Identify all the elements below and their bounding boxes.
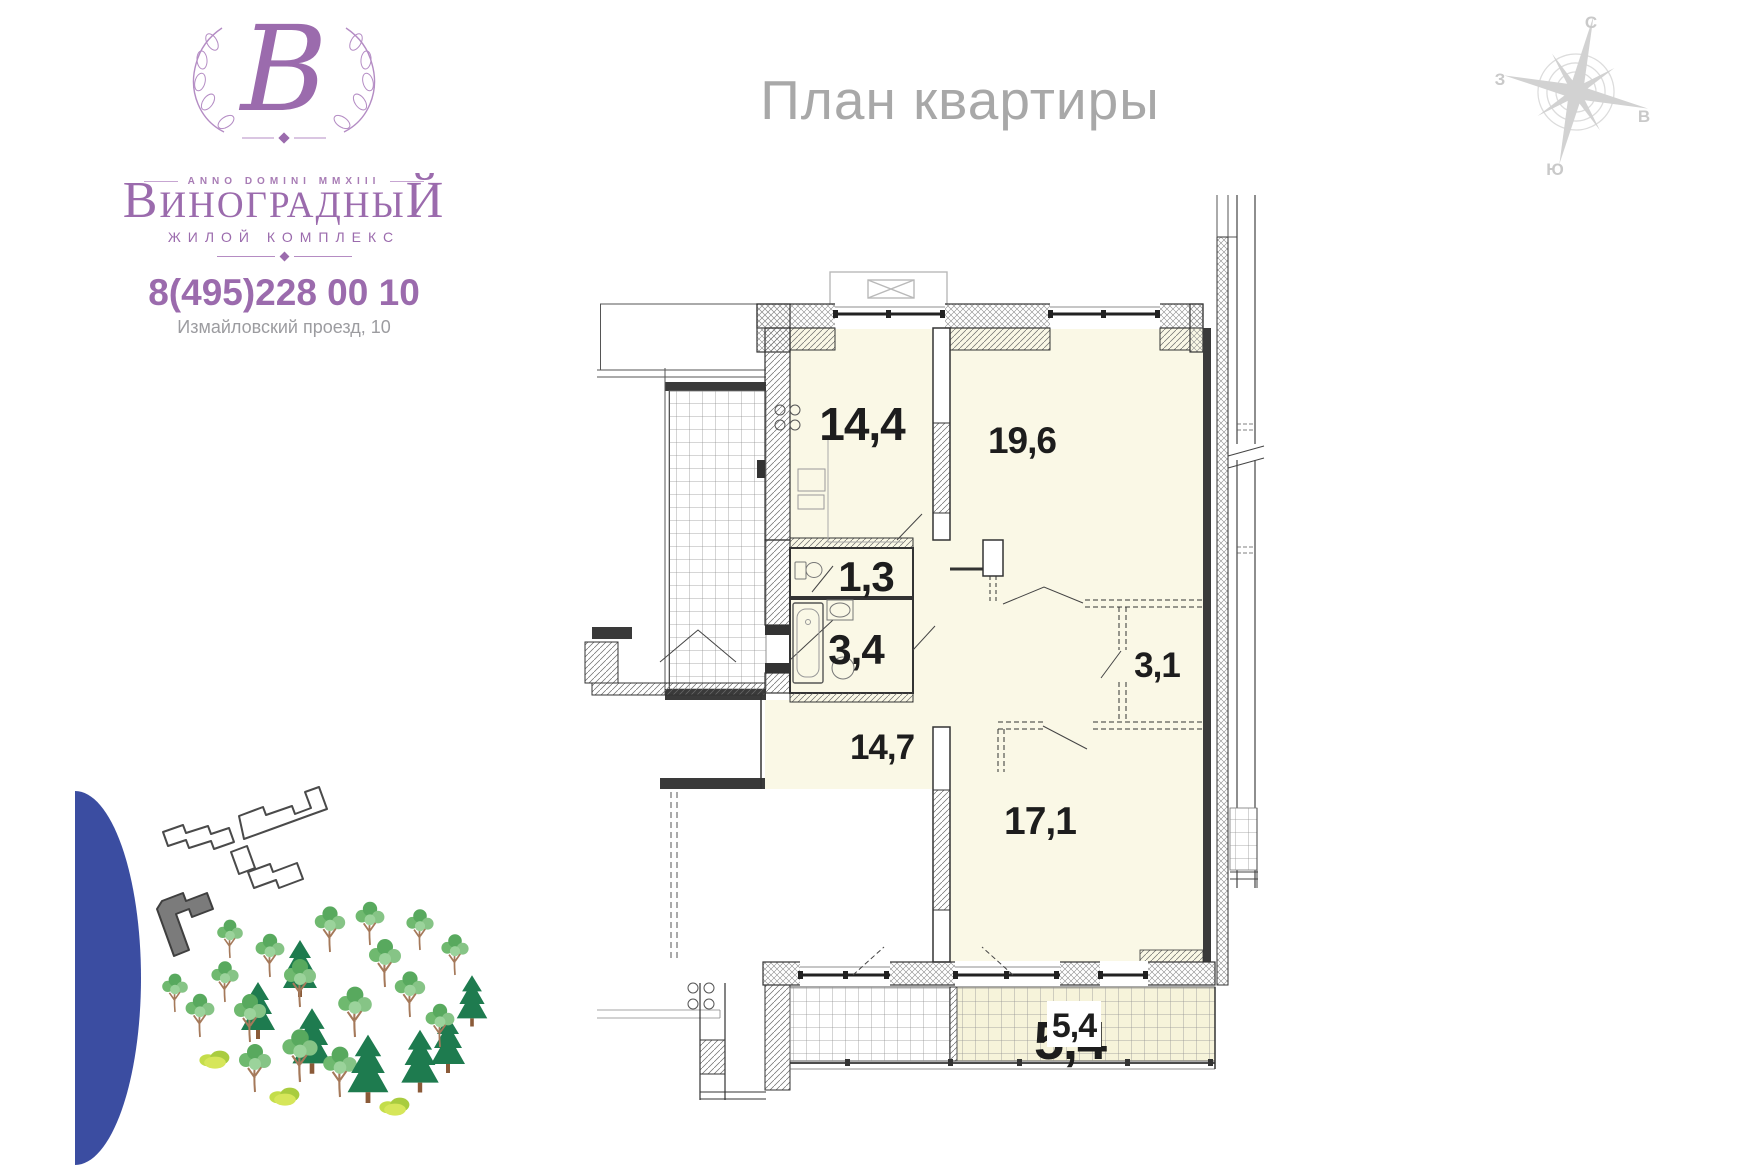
balcony-window-right (953, 961, 1060, 986)
complex-name-first-cap: В (123, 172, 160, 229)
ornament-divider (116, 253, 452, 260)
ornament-line-right (294, 256, 352, 257)
room-label-bathroom: 3,4 (828, 626, 885, 673)
logo-monogram-letter: В (239, 4, 328, 138)
bedroom-left-wall (933, 727, 950, 962)
developer-logo: В ANNO DOMINI MMXIII ВИНОГРАДНЫЙ ЖИЛОЙ К… (116, 4, 452, 338)
compass-east-label: В (1638, 107, 1650, 126)
compass-west-label: З (1495, 70, 1506, 89)
brochure-page: В ANNO DOMINI MMXIII ВИНОГРАДНЫЙ ЖИЛОЙ К… (0, 0, 1762, 1165)
balcony-area-label-group: 5,4 5,4 (1034, 1001, 1107, 1071)
neighbor-balcony-right (1230, 808, 1258, 888)
vent-shaft-icon (830, 272, 947, 304)
balcony-window-small (1098, 961, 1148, 986)
forest-illustration (162, 902, 487, 1116)
wreath-icon: В (116, 4, 452, 182)
compass-south-label: Ю (1546, 160, 1564, 179)
ornament-line-left (217, 256, 275, 257)
site-plan-decoration (0, 680, 570, 1165)
building-outline (239, 787, 327, 839)
page-title: План квартиры (680, 68, 1240, 132)
apartment-floor-plan: 5,4 5,4 14,4 19,6 1,3 3,4 3,1 14,7 17,1 (555, 190, 1335, 1165)
compass-rose: С Ю З В (1470, 0, 1700, 200)
diamond-icon (279, 251, 289, 261)
room-label-balcony: 5,4 (1052, 1007, 1097, 1045)
living-window (1048, 303, 1160, 329)
address-line: Измайловский проезд, 10 (116, 317, 452, 338)
compass-north-label: С (1585, 13, 1597, 32)
room-label-living: 19,6 (988, 420, 1056, 461)
bottom-wall (763, 947, 1215, 986)
phone-number: 8(495)228 00 10 (116, 272, 452, 314)
room-label-kitchen: 14,4 (819, 398, 906, 450)
balcony-strip (765, 985, 1215, 1090)
room-label-hall: 14,7 (850, 728, 914, 767)
complex-name-last-cap: Й (406, 172, 446, 229)
neighbor-stove-icon (688, 983, 714, 1009)
neighbor-structure-left (597, 304, 766, 377)
compass-star-icon (1487, 0, 1665, 181)
complex-name: ВИНОГРАДНЫЙ (116, 187, 452, 226)
balcony-window-left (798, 961, 890, 986)
room-label-bedroom: 17,1 (1004, 800, 1076, 843)
logo-monogram-wreath: В (116, 4, 452, 182)
room-label-wardrobe: 3,1 (1134, 646, 1180, 685)
kitchen-window (833, 303, 945, 329)
room-label-wc: 1,3 (838, 553, 893, 600)
building-outline (248, 863, 303, 888)
right-wall-and-corridor (1203, 195, 1264, 985)
building-outline (163, 825, 234, 849)
complex-subtitle: ЖИЛОЙ КОМПЛЕКС (116, 229, 452, 245)
complex-name-middle: ИНОГРАДНЫ (159, 185, 405, 226)
neighbor-balcony-left (665, 368, 766, 700)
building-highlighted (157, 893, 213, 956)
blue-arc-shape (75, 791, 141, 1165)
